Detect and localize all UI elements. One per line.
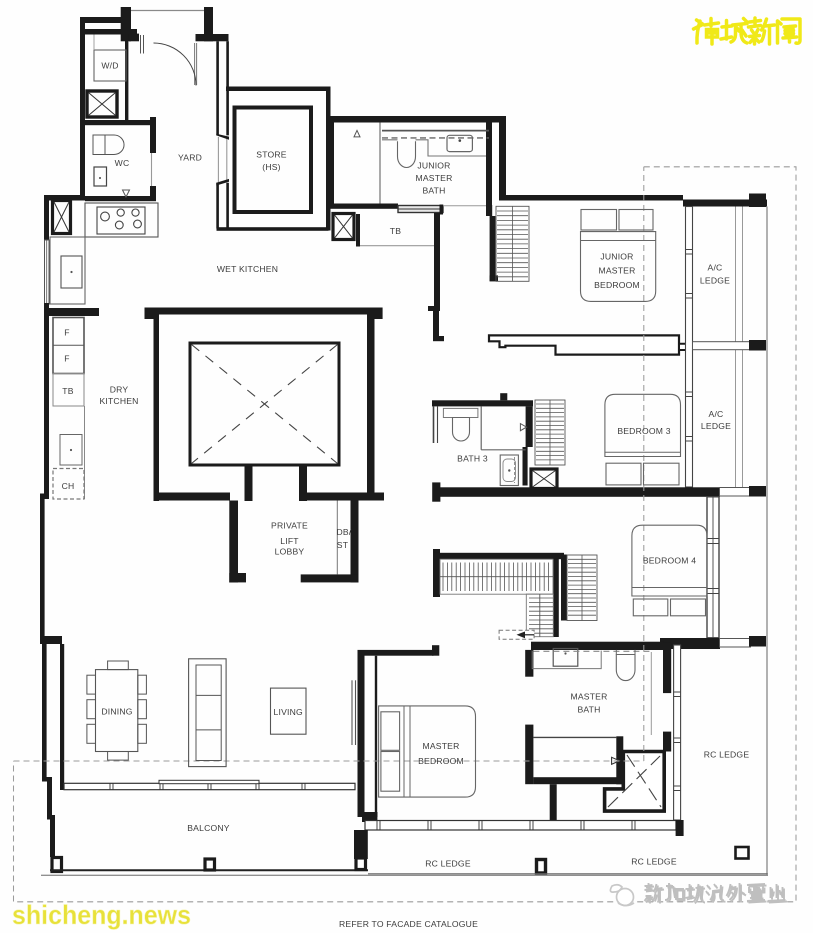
svg-text:BEDROOM: BEDROOM [418,756,464,766]
svg-text:BEDROOM 4: BEDROOM 4 [643,556,696,566]
svg-text:JUNIOR: JUNIOR [417,161,450,171]
svg-text:BATH 3: BATH 3 [457,454,488,464]
svg-text:DRY: DRY [110,385,129,395]
svg-text:DINING: DINING [101,707,132,717]
svg-text:REFER TO FACADE CATALOGUE: REFER TO FACADE CATALOGUE [339,919,478,929]
svg-text:KITCHEN: KITCHEN [99,396,138,406]
svg-text:A/C: A/C [709,409,724,419]
svg-text:TB: TB [390,226,401,236]
svg-text:BEDROOM: BEDROOM [594,280,640,290]
svg-text:CH: CH [62,481,75,491]
svg-text:shicheng.news: shicheng.news [12,900,191,930]
svg-text:LIFT: LIFT [280,536,299,546]
svg-text:BATH: BATH [422,186,445,196]
svg-text:STORE: STORE [256,150,287,160]
svg-text:RC LEDGE: RC LEDGE [704,750,750,760]
svg-text:DB/: DB/ [337,527,352,537]
svg-text:RC LEDGE: RC LEDGE [631,857,677,867]
svg-text:PRIVATE: PRIVATE [271,521,308,531]
svg-text:A/C: A/C [708,263,723,273]
svg-text:WET KITCHEN: WET KITCHEN [217,264,278,274]
svg-text:LOBBY: LOBBY [275,547,305,557]
svg-text:F: F [64,328,69,338]
svg-text:(HS): (HS) [262,162,280,172]
svg-text:MASTER: MASTER [598,266,635,276]
svg-text:LEDGE: LEDGE [701,421,731,431]
svg-text:RC LEDGE: RC LEDGE [425,859,471,869]
svg-text:LEDGE: LEDGE [700,276,730,286]
svg-text:WC: WC [115,158,130,168]
svg-text:LIVING: LIVING [274,707,303,717]
svg-text:BATH: BATH [577,705,600,715]
svg-text:MASTER: MASTER [570,692,607,702]
svg-text:F: F [64,354,69,364]
svg-text:MASTER: MASTER [415,173,452,183]
svg-text:BALCONY: BALCONY [187,823,230,833]
svg-text:W/D: W/D [101,61,118,71]
svg-text:TB: TB [62,386,73,396]
svg-text:MASTER: MASTER [422,741,459,751]
svg-text:BEDROOM 3: BEDROOM 3 [617,426,670,436]
svg-text:JUNIOR: JUNIOR [600,252,633,262]
svg-text:YARD: YARD [178,153,202,163]
svg-text:ST: ST [337,540,349,550]
